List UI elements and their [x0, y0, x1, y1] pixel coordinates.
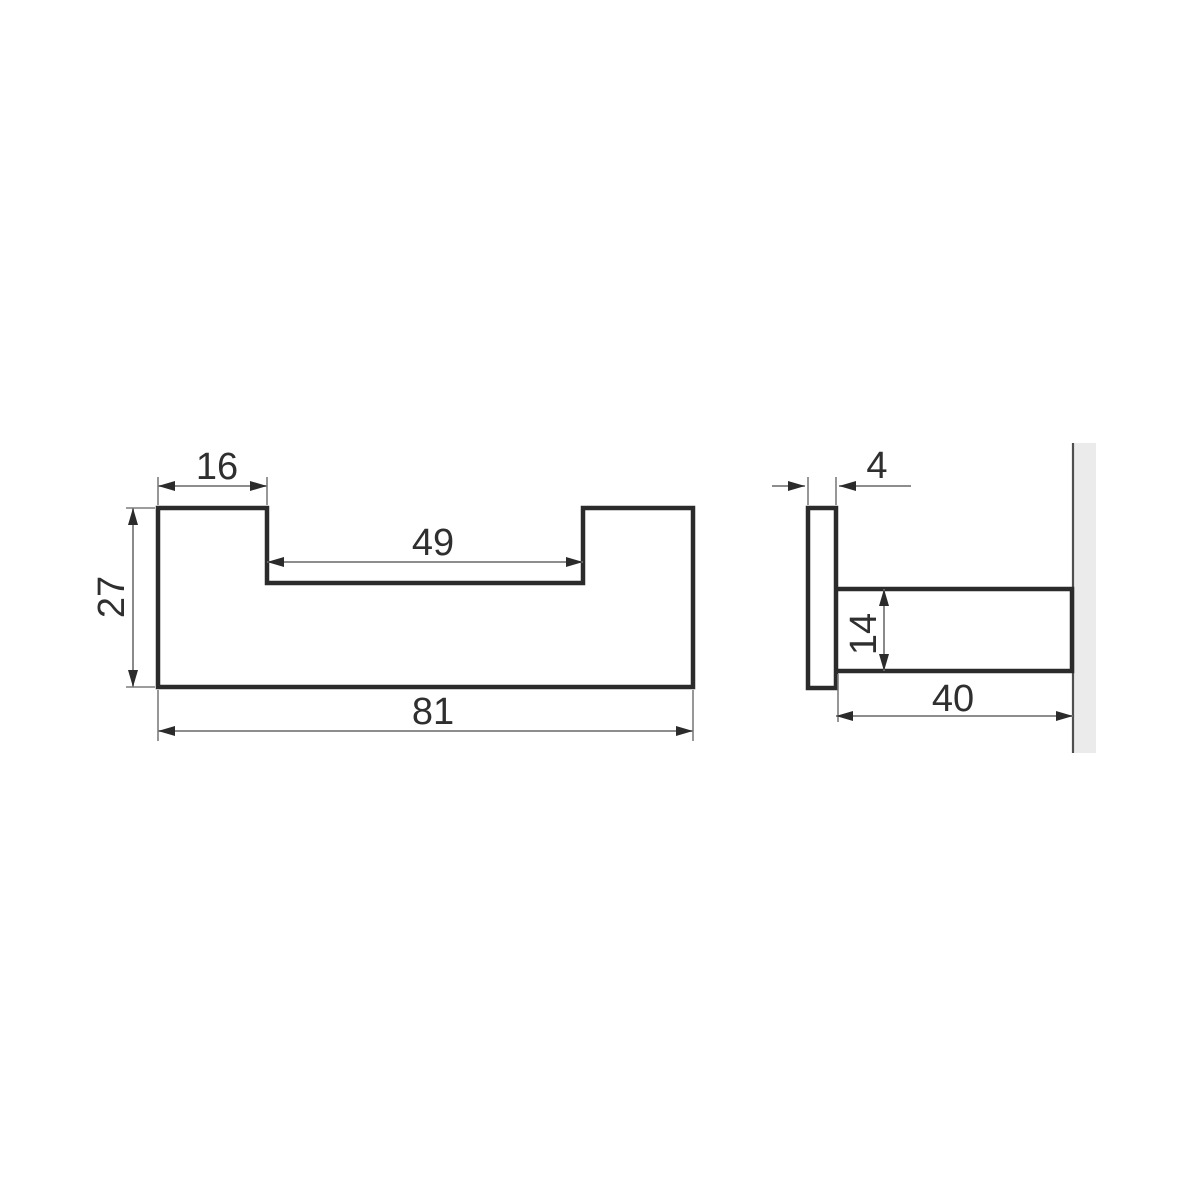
dim-label-overall-width: 81	[412, 691, 454, 733]
dim-label-tab-width: 16	[196, 446, 238, 488]
front-view: 16 49 27 81	[91, 446, 693, 741]
front-extension-lines	[126, 477, 693, 741]
dim-label-height: 27	[91, 576, 133, 618]
side-plate-outline	[808, 508, 836, 688]
front-dimension-labels: 16 49 27 81	[91, 446, 454, 733]
mounting-wall	[1073, 443, 1096, 753]
technical-drawing: 16 49 27 81	[0, 0, 1200, 1200]
dim-label-slot-width: 49	[412, 522, 454, 564]
dim-label-plate-thickness: 4	[866, 445, 887, 487]
dim-label-arm-length: 40	[932, 678, 974, 720]
drawing-canvas: 16 49 27 81	[0, 0, 1200, 1200]
dim-label-arm-height: 14	[843, 613, 885, 655]
side-view: 4 14 40	[772, 443, 1096, 753]
